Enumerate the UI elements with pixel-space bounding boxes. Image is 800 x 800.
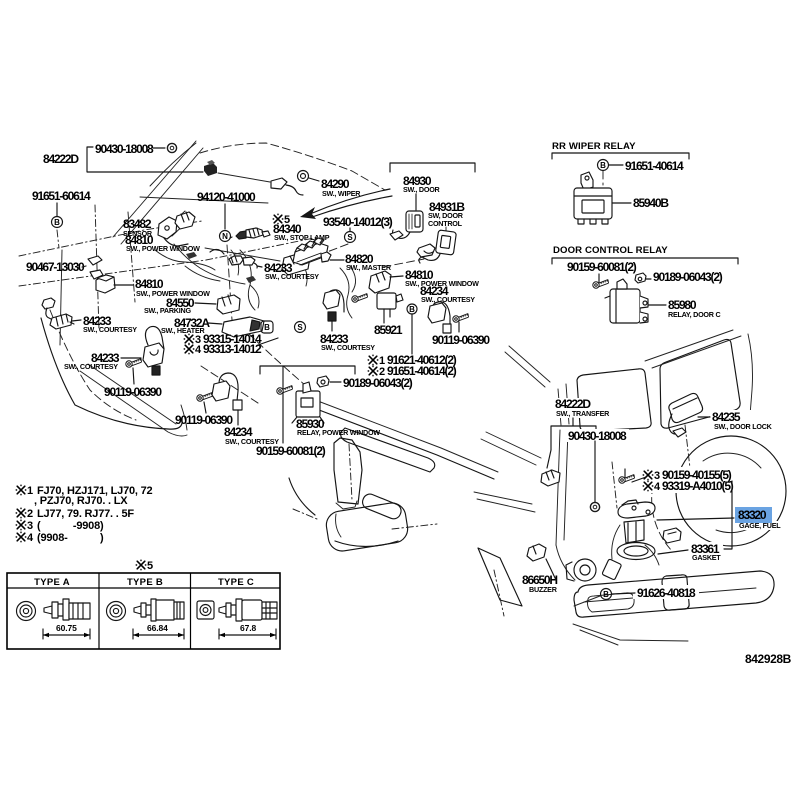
svg-text:60.75: 60.75 [56, 623, 77, 633]
svg-text:91651-40614: 91651-40614 [625, 159, 684, 173]
svg-text:GAGE, FUEL: GAGE, FUEL [739, 521, 781, 530]
svg-text:RELAY, POWER WINDOW: RELAY, POWER WINDOW [297, 428, 380, 437]
svg-text:SW., DOOR LOCK: SW., DOOR LOCK [714, 422, 773, 431]
svg-text:93313-14012: 93313-14012 [203, 342, 262, 356]
svg-text:91626-40818: 91626-40818 [637, 586, 696, 600]
svg-text:94120-41000: 94120-41000 [197, 190, 256, 204]
svg-text:93319-A4010(5): 93319-A4010(5) [662, 479, 734, 493]
svg-text:90430-18008: 90430-18008 [568, 429, 627, 443]
svg-text:TYPE B: TYPE B [127, 577, 163, 588]
svg-text:SW., DOOR: SW., DOOR [403, 185, 441, 194]
svg-text:B: B [264, 323, 270, 332]
svg-text:( -9908): ( -9908) [37, 520, 104, 532]
svg-text:B: B [409, 305, 415, 314]
svg-text:842928B: 842928B [745, 652, 792, 666]
svg-text:GASKET: GASKET [692, 553, 721, 562]
svg-text:90430-18008: 90430-18008 [95, 142, 154, 156]
svg-text:SW., WIPER: SW., WIPER [322, 189, 361, 198]
svg-text:S: S [347, 233, 353, 242]
svg-text:N: N [222, 232, 228, 241]
svg-text:SW., POWER WINDOW: SW., POWER WINDOW [126, 244, 200, 253]
svg-text:85940B: 85940B [633, 196, 669, 210]
svg-text:B: B [603, 590, 609, 599]
svg-text:RELAY, DOOR C: RELAY, DOOR C [668, 310, 720, 319]
svg-text:SW., COURTESY: SW., COURTESY [83, 325, 137, 334]
svg-text:LJ77, 79. RJ77. . 5F: LJ77, 79. RJ77. . 5F [37, 508, 134, 520]
svg-text:2: 2 [27, 508, 33, 520]
svg-text:90159-60081(2): 90159-60081(2) [256, 444, 326, 458]
svg-text:91651-60614: 91651-60614 [32, 189, 91, 203]
svg-text:84222D: 84222D [43, 152, 79, 166]
svg-text:90119-06390: 90119-06390 [432, 333, 490, 347]
svg-text:BUZZER: BUZZER [529, 585, 558, 594]
svg-text:SW., COURTESY: SW., COURTESY [265, 272, 319, 281]
svg-text:SW., COURTESY: SW., COURTESY [421, 295, 475, 304]
svg-text:90189-06043(2): 90189-06043(2) [343, 376, 413, 390]
svg-text:3: 3 [27, 520, 33, 532]
svg-text:90189-06043(2): 90189-06043(2) [653, 270, 723, 284]
svg-text:SW., COURTESY: SW., COURTESY [64, 362, 118, 371]
svg-text:CONTROL: CONTROL [428, 219, 463, 228]
svg-text:1: 1 [27, 485, 33, 497]
svg-text:RR WIPER RELAY: RR WIPER RELAY [552, 141, 636, 152]
svg-text:DOOR CONTROL RELAY: DOOR CONTROL RELAY [553, 245, 668, 256]
svg-text:90119-06390: 90119-06390 [104, 385, 162, 399]
svg-text:83320: 83320 [738, 508, 767, 522]
svg-text:SW., PARKING: SW., PARKING [144, 306, 191, 315]
svg-text:, PZJ70, RJ70. . LX: , PZJ70, RJ70. . LX [34, 495, 128, 507]
svg-text:TYPE A: TYPE A [34, 577, 70, 588]
svg-text:SW., COURTESY: SW., COURTESY [321, 343, 375, 352]
svg-text:(9908- ): (9908- ) [37, 532, 104, 544]
svg-text:B: B [600, 161, 606, 170]
svg-text:85921: 85921 [374, 323, 403, 337]
svg-text:SW., TRANSFER: SW., TRANSFER [556, 409, 610, 418]
svg-text:93540-14012(3): 93540-14012(3) [323, 215, 393, 229]
svg-text:5: 5 [147, 560, 153, 572]
svg-text:S: S [297, 323, 303, 332]
svg-text:B: B [54, 218, 60, 227]
svg-text:66.84: 66.84 [147, 623, 168, 633]
svg-text:91651-40614(2): 91651-40614(2) [387, 364, 457, 378]
svg-text:90467-13030: 90467-13030 [26, 260, 85, 274]
svg-text:67.8: 67.8 [240, 623, 257, 633]
svg-text:2: 2 [379, 366, 385, 378]
svg-text:90159-60081(2): 90159-60081(2) [567, 260, 637, 274]
svg-text:TYPE C: TYPE C [218, 577, 254, 588]
